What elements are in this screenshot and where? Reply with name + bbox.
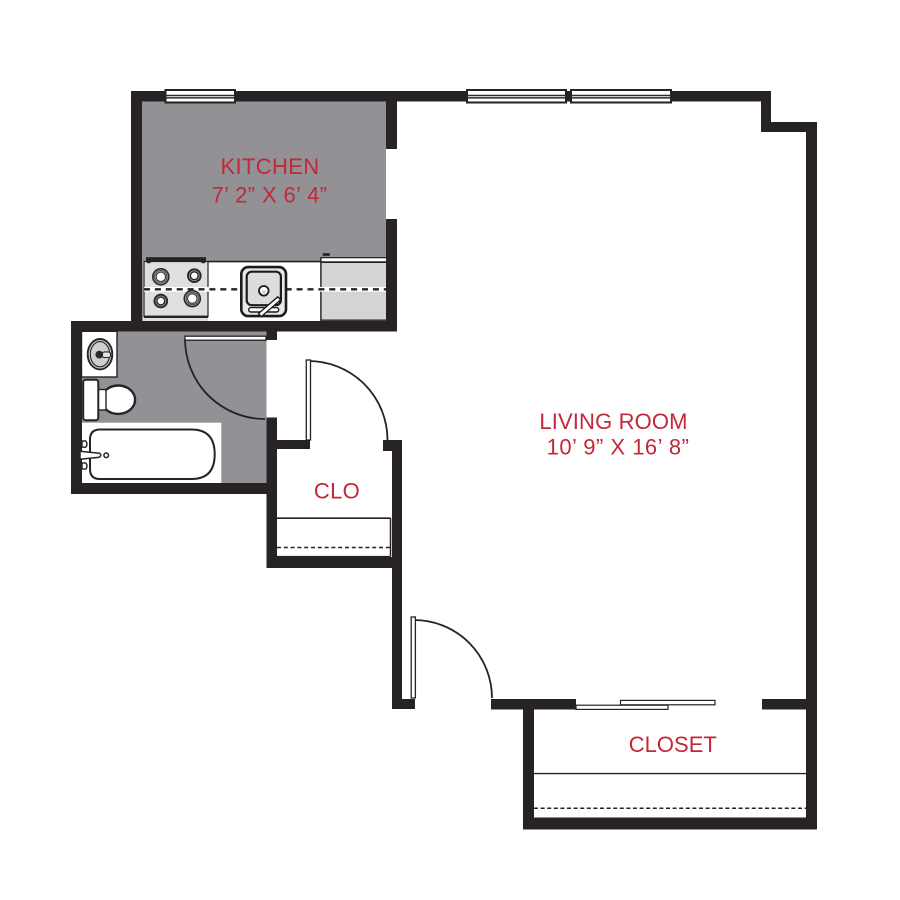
svg-text:10’ 9” X 16’ 8”: 10’ 9” X 16’ 8” bbox=[547, 434, 690, 459]
svg-text:CLOSET: CLOSET bbox=[629, 732, 717, 757]
svg-text:CLO: CLO bbox=[314, 479, 360, 504]
svg-text:KITCHEN: KITCHEN bbox=[220, 154, 319, 179]
svg-text:7’ 2” X 6’ 4”: 7’ 2” X 6’ 4” bbox=[211, 182, 327, 207]
svg-text:LIVING ROOM: LIVING ROOM bbox=[539, 409, 687, 434]
